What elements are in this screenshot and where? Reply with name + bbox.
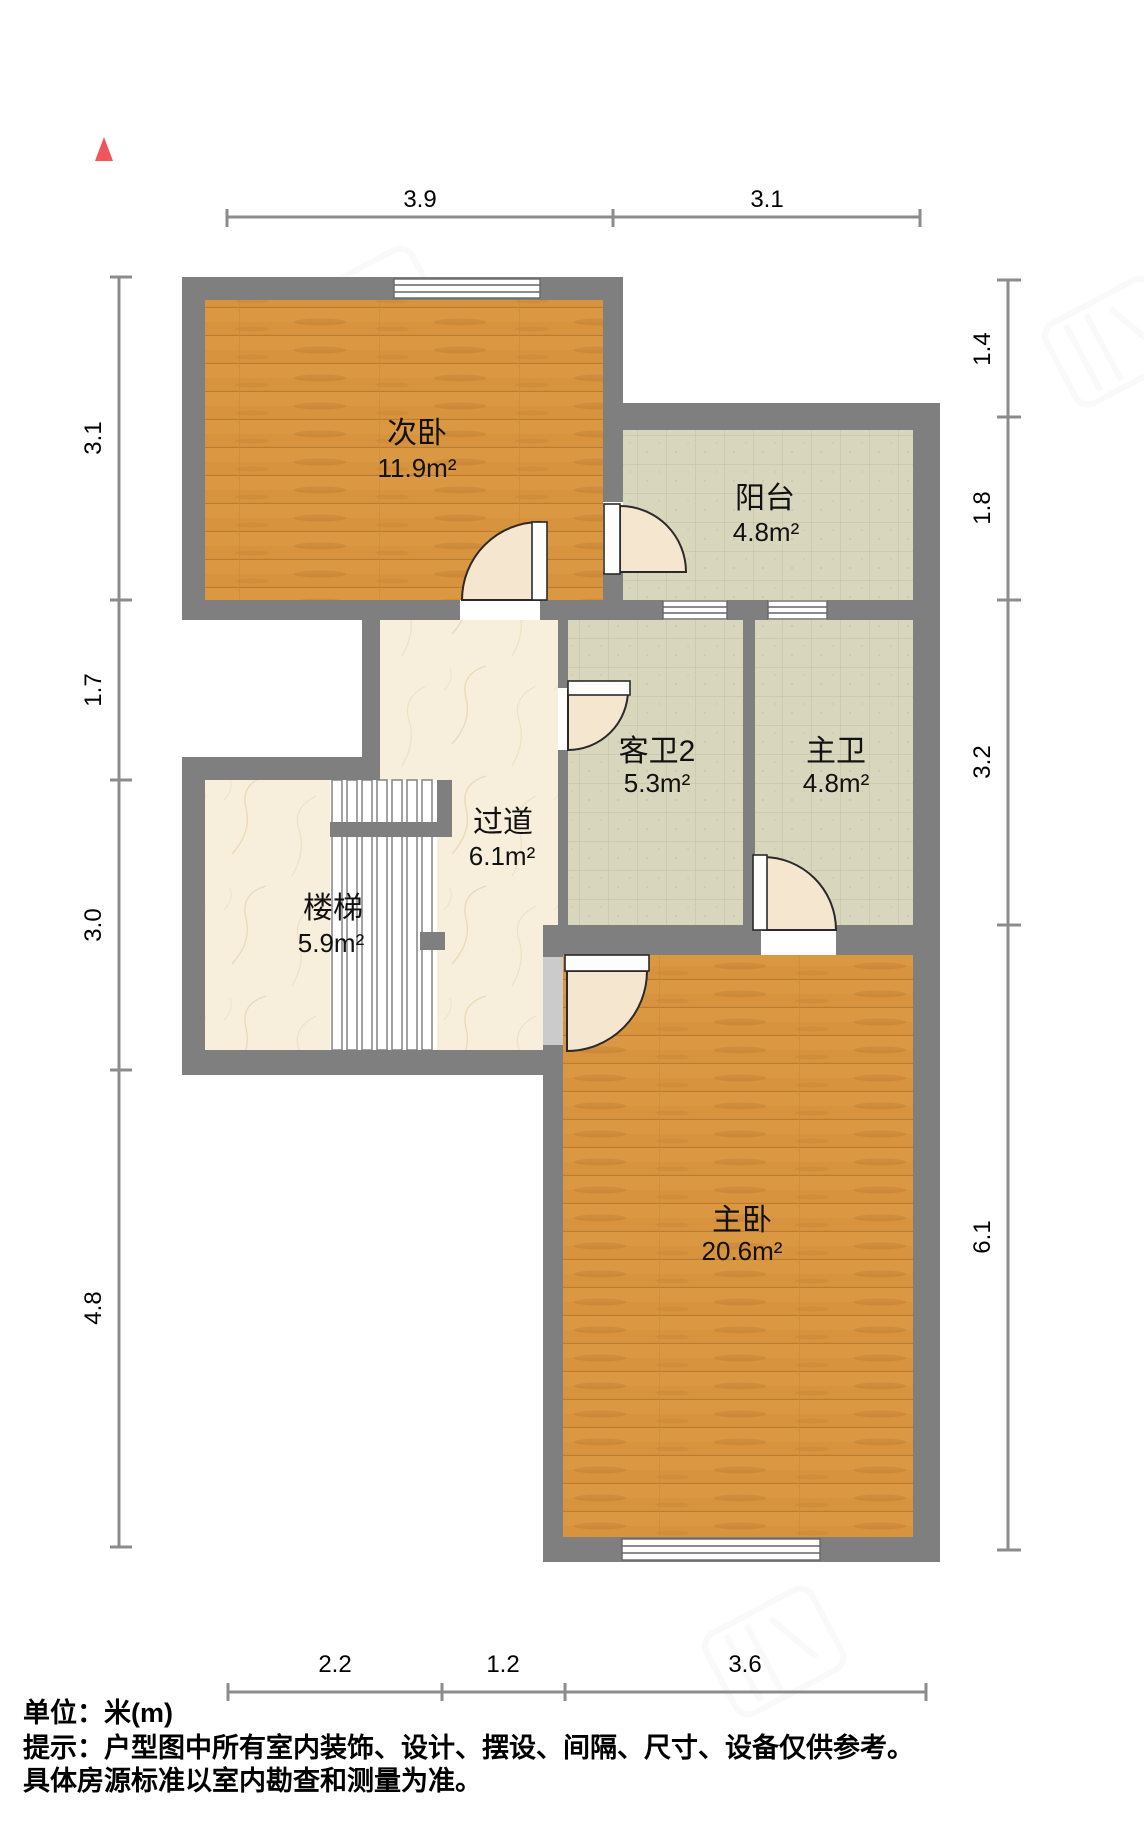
dimension-label: 2.2	[318, 1651, 351, 1678]
wall-segment	[827, 600, 913, 620]
dimension-label: 4.8	[80, 1291, 107, 1324]
dimension-label: 1.7	[80, 673, 107, 706]
room-label: 楼梯	[303, 892, 363, 925]
wall-segment	[558, 620, 568, 688]
dimension-label: 6.1	[969, 1220, 996, 1253]
window-master-bedroom	[622, 1539, 820, 1560]
wall-segment	[727, 600, 768, 620]
room-label: 阳台	[735, 482, 795, 515]
north-arrow-icon	[95, 137, 113, 161]
room-label: 次卧	[387, 417, 447, 450]
disclaimer-line-2: 具体房源标准以室内勘查和测量为准。	[23, 1765, 482, 1796]
stairs-landing-wall	[330, 822, 452, 837]
door-threshold	[543, 957, 563, 1045]
dimension-label: 1.4	[969, 332, 996, 365]
wall-segment	[603, 403, 940, 430]
wall-segment	[182, 757, 205, 1075]
dimension-label: 1.8	[969, 491, 996, 524]
door-leaf	[753, 855, 767, 930]
room-label: 客卫2	[619, 735, 696, 768]
wall-segment	[603, 277, 623, 502]
dimension-label: 3.6	[728, 1651, 761, 1678]
door-leaf	[604, 504, 620, 574]
window-guest-bath	[663, 601, 727, 619]
wall-segment	[540, 600, 663, 620]
dimension-bottom	[228, 1683, 926, 1701]
unit-note: 单位：米(m)	[23, 1697, 173, 1728]
door-leaf	[532, 522, 547, 600]
dimension-label: 3.1	[80, 421, 107, 454]
floor-plan-page: 次卧 11.9m² 阳台 4.8m² 客卫2 5.3m² 主卫 4.8m² 过道…	[0, 0, 1144, 1838]
dimension-label: 1.2	[486, 1651, 519, 1678]
dimension-label: 3.1	[750, 186, 783, 213]
door-leaf	[565, 955, 649, 971]
room-area: 5.9m²	[298, 928, 365, 958]
room-floor-balcony	[623, 430, 913, 600]
dimension-label: 3.2	[969, 745, 996, 778]
wall-segment	[437, 780, 452, 835]
wall-segment	[543, 1045, 563, 1562]
room-label: 主卫	[806, 735, 866, 768]
window-master-bath	[768, 601, 827, 619]
room-label: 主卧	[712, 1204, 772, 1237]
door-leaf	[568, 681, 630, 695]
room-area: 4.8m²	[733, 517, 800, 547]
stairs-handrail-stub	[420, 932, 445, 950]
wall-segment	[182, 600, 460, 620]
room-area: 6.1m²	[469, 841, 536, 871]
window-secondary-bedroom	[394, 279, 540, 298]
wall-segment	[913, 403, 940, 1562]
dimension-top	[227, 209, 920, 227]
dimension-label: 3.9	[403, 186, 436, 213]
room-area: 5.3m²	[624, 768, 691, 798]
wall-segment	[558, 750, 568, 930]
wall-segment	[836, 925, 913, 955]
room-area: 11.9m²	[378, 453, 457, 483]
wall-segment	[182, 1050, 563, 1075]
wall-segment	[557, 925, 761, 955]
wall-segment	[543, 925, 563, 957]
room-label: 过道	[473, 806, 533, 839]
dimension-label: 3.0	[80, 908, 107, 941]
wall-segment	[182, 277, 205, 620]
disclaimer-line-1: 提示：户型图中所有室内装饰、设计、摆设、间隔、尺寸、设备仅供参考。	[23, 1732, 914, 1763]
room-floor-corridor	[380, 620, 558, 780]
wall-segment	[362, 620, 380, 780]
dimension-right	[997, 280, 1021, 1550]
room-area: 4.8m²	[803, 768, 870, 798]
room-area: 20.6m²	[702, 1236, 783, 1266]
footer-notes: 单位：米(m) 提示：户型图中所有室内装饰、设计、摆设、间隔、尺寸、设备仅供参考…	[23, 1697, 914, 1796]
wall-segment	[182, 757, 380, 780]
floor-plan-canvas: 次卧 11.9m² 阳台 4.8m² 客卫2 5.3m² 主卫 4.8m² 过道…	[0, 0, 1144, 1838]
dimension-left	[110, 277, 132, 1547]
